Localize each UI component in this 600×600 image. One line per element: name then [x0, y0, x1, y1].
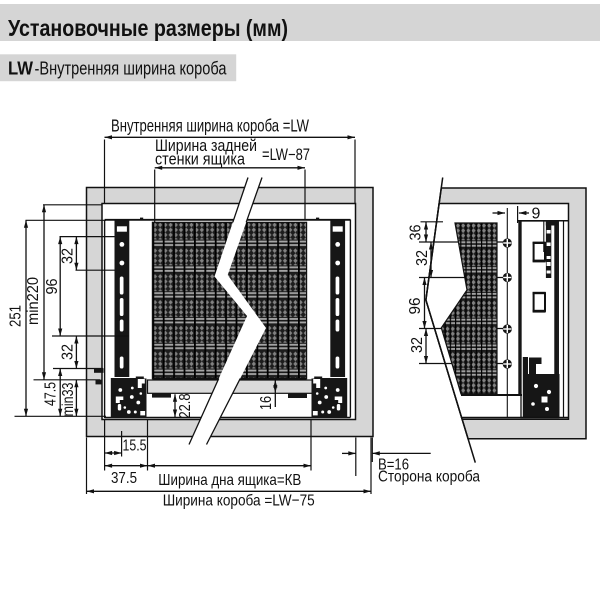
svg-text:32: 32 — [409, 337, 426, 353]
svg-text:47.5: 47.5 — [43, 382, 60, 406]
svg-text:min33: min33 — [60, 383, 77, 417]
svg-text:22.8: 22.8 — [177, 394, 194, 419]
svg-text:15.5: 15.5 — [123, 438, 147, 455]
svg-text:32: 32 — [60, 248, 77, 264]
svg-text:-Внутренняя ширина короба: -Внутренняя ширина короба — [35, 58, 228, 78]
svg-text:LW: LW — [8, 58, 33, 78]
svg-text:32: 32 — [60, 344, 77, 360]
svg-text:Сторона короба: Сторона короба — [378, 468, 480, 485]
svg-text:251: 251 — [8, 305, 25, 327]
svg-text:стенки ящика: стенки ящика — [155, 151, 246, 169]
svg-text:32: 32 — [414, 250, 431, 266]
svg-text:9: 9 — [532, 206, 541, 223]
svg-text:min220: min220 — [25, 277, 42, 325]
svg-text:36: 36 — [408, 225, 425, 241]
svg-text:96: 96 — [407, 298, 424, 315]
svg-text:37.5: 37.5 — [111, 470, 137, 487]
svg-text:Ширина короба =LW−75: Ширина короба =LW−75 — [163, 493, 315, 510]
svg-text:16: 16 — [258, 396, 275, 410]
svg-text:Внутренняя ширина короба =LW: Внутренняя ширина короба =LW — [111, 116, 309, 136]
svg-text:96: 96 — [44, 279, 61, 295]
svg-text:=LW−87: =LW−87 — [262, 146, 310, 164]
svg-text:Ширина дна ящика=КВ: Ширина дна ящика=КВ — [158, 472, 301, 489]
svg-text:Установочные размеры (мм): Установочные размеры (мм) — [8, 15, 288, 41]
